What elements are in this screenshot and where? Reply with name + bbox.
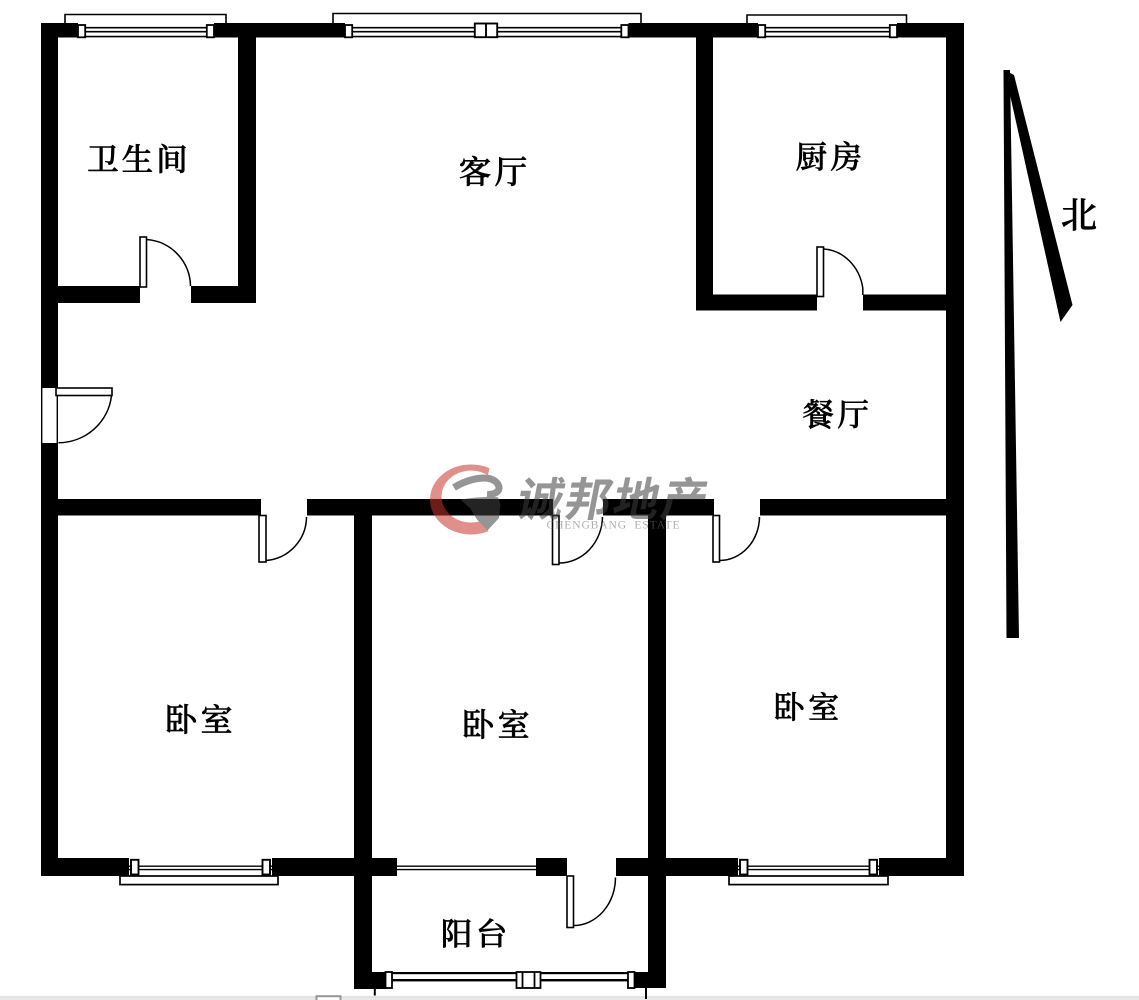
svg-text:CHENGBANG ESTATE: CHENGBANG ESTATE <box>547 519 681 532</box>
